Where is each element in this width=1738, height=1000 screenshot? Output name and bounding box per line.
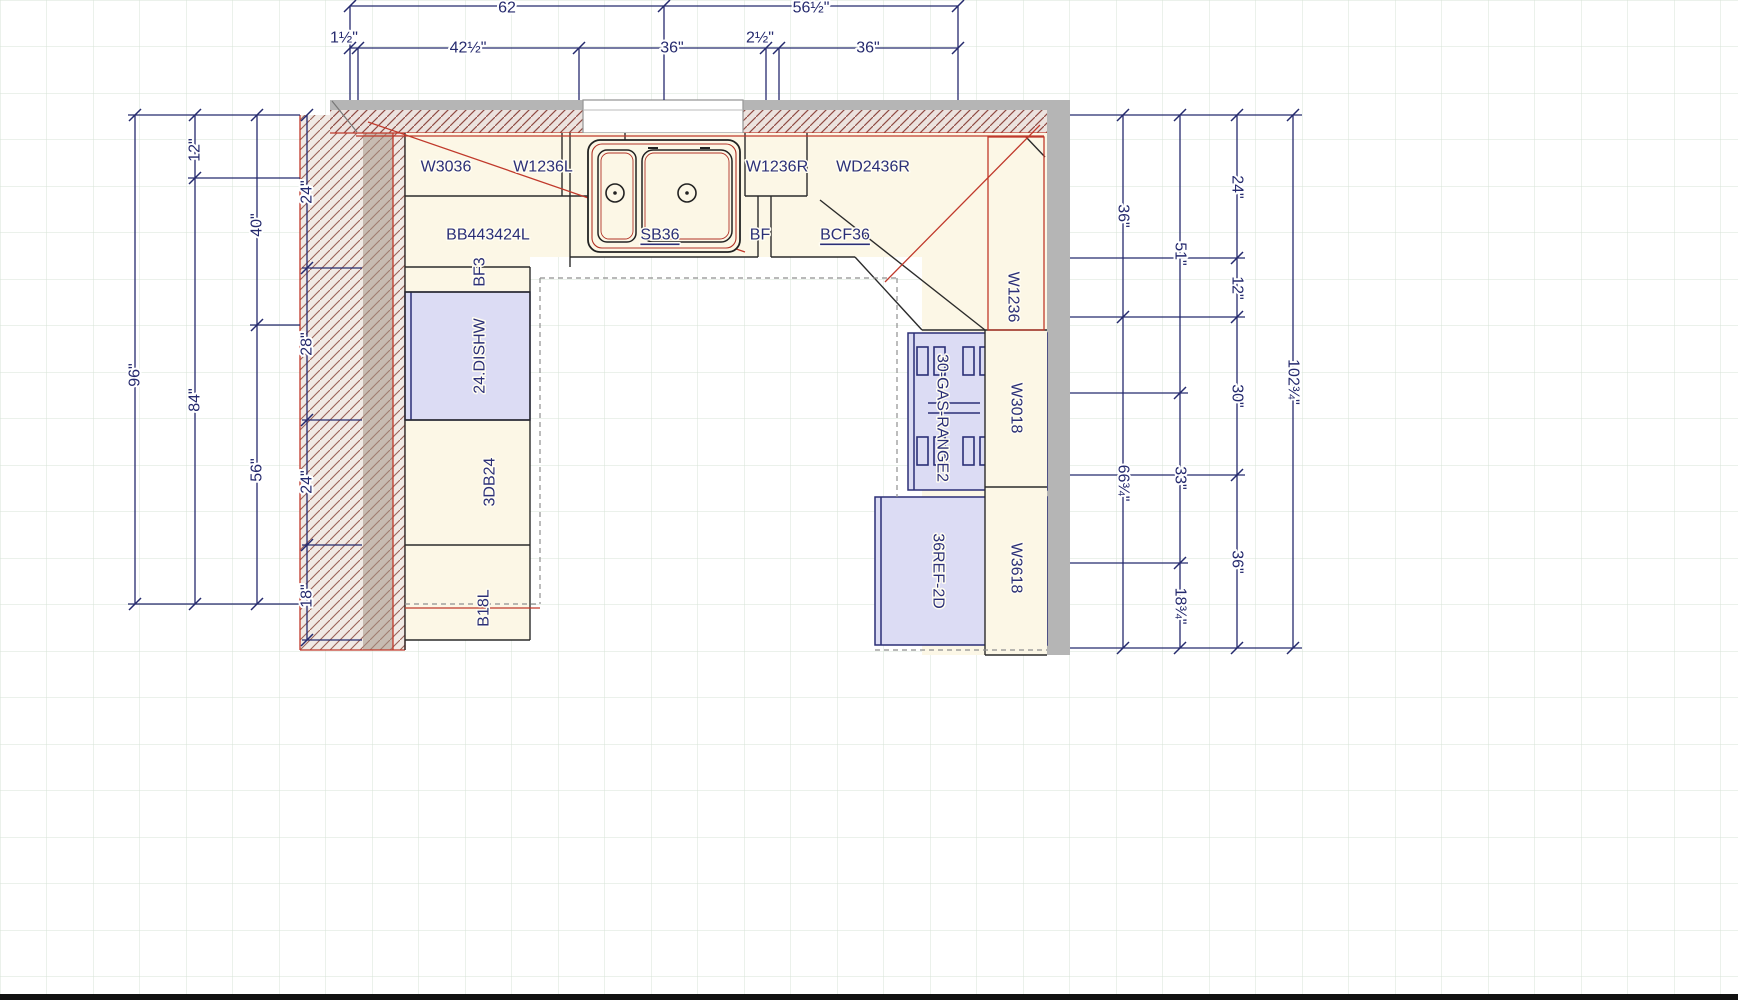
floor-plan-drawing: 62 56½" 1½" 42½" 36" 2½" 36" 96" 12" 84"… bbox=[0, 0, 1738, 1000]
dim-left-96: 96" bbox=[127, 363, 144, 386]
dim-top-seg-2: 42½" bbox=[450, 40, 487, 57]
dishwasher bbox=[405, 292, 530, 420]
label-bf: BF bbox=[750, 227, 771, 244]
label-gas-range: 30-GAS-RANGE2 bbox=[934, 354, 951, 482]
label-3db24: 3DB24 bbox=[482, 457, 499, 506]
dim-right-overall: 102¾" bbox=[1285, 359, 1302, 405]
dim-top-seg-4: 2½" bbox=[746, 30, 774, 47]
dim-left-56: 56" bbox=[249, 458, 266, 481]
dim-right-24: 24" bbox=[1229, 175, 1246, 198]
label-dishwasher: 24.DISHW bbox=[472, 317, 489, 393]
label-w1236: W1236 bbox=[1005, 272, 1022, 323]
dim-wall-24b: 24" bbox=[299, 470, 316, 493]
label-w3018: W3018 bbox=[1008, 383, 1025, 434]
dim-wall-18: 18" bbox=[299, 584, 316, 607]
dim-left-12: 12" bbox=[187, 138, 204, 161]
label-wd2436r: WD2436R bbox=[836, 159, 910, 176]
dim-top-seg-5: 36" bbox=[856, 40, 879, 57]
dim-right-33: 33" bbox=[1172, 466, 1189, 489]
bottom-edge-bar bbox=[0, 994, 1738, 1000]
dim-wall-24a: 24" bbox=[299, 180, 316, 203]
window-above-sink bbox=[583, 100, 743, 133]
dim-top-seg-1: 1½" bbox=[330, 30, 358, 47]
dim-wall-28: 28" bbox=[299, 332, 316, 355]
dim-left-84: 84" bbox=[187, 388, 204, 411]
label-w3036: W3036 bbox=[421, 159, 472, 176]
left-wall bbox=[300, 115, 405, 650]
label-refrigerator: 36REF-2D bbox=[930, 533, 947, 609]
dim-right-51: 51" bbox=[1172, 242, 1189, 265]
dim-right-66: 66¾" bbox=[1115, 465, 1132, 502]
dim-left-40: 40" bbox=[249, 213, 266, 236]
cad-canvas: 62 56½" 1½" 42½" 36" 2½" 36" 96" 12" 84"… bbox=[0, 0, 1738, 1000]
dim-right-36b: 36" bbox=[1229, 550, 1246, 573]
label-w3618: W3618 bbox=[1008, 543, 1025, 594]
dim-right-36a: 36" bbox=[1115, 204, 1132, 227]
label-bcf36: BCF36 bbox=[820, 227, 870, 244]
label-w1236r: W1236R bbox=[746, 159, 808, 176]
dim-top-overall-1: 62 bbox=[498, 0, 516, 17]
dim-right-30: 30" bbox=[1229, 384, 1246, 407]
dim-top-seg-3: 36" bbox=[660, 40, 683, 57]
dim-top-overall-2: 56½" bbox=[793, 0, 830, 17]
dim-right-12: 12" bbox=[1229, 276, 1246, 299]
right-wall-cabinet-column bbox=[985, 330, 1047, 655]
label-w1236l: W1236L bbox=[513, 159, 573, 176]
label-sb36: SB36 bbox=[640, 227, 679, 244]
label-bf3: BF3 bbox=[472, 257, 489, 286]
right-wall bbox=[1047, 100, 1070, 655]
label-bb443424l: BB443424L bbox=[446, 227, 530, 244]
dim-right-18: 18¾" bbox=[1172, 588, 1189, 625]
label-b18l: B18L bbox=[476, 589, 493, 626]
